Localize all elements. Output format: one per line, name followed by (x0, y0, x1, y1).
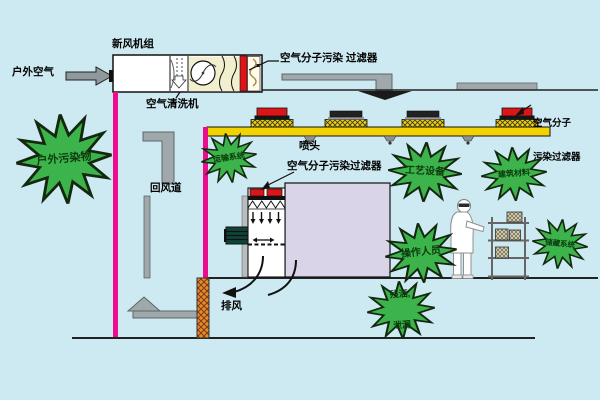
ceiling-filter-unit (325, 111, 367, 127)
bench-amc-filter (267, 189, 282, 196)
ceiling-filter-unit (402, 111, 444, 127)
return-air-duct (128, 132, 197, 318)
amc-filter-right-line1: 空气分子 (533, 118, 581, 129)
goggles-icon (459, 204, 470, 208)
air-washer-label: 空气清洗机 (146, 98, 199, 111)
motor-icon (224, 227, 248, 244)
ahu-amc-filter-bar (240, 56, 247, 91)
fan-icon (190, 61, 216, 85)
outer-wall (113, 92, 118, 338)
starburst-outdoor-pollutants: 户外污染物 (12, 110, 115, 208)
ahu-box (113, 55, 262, 92)
nozzle-label: 喷头 (299, 140, 320, 153)
return-duct-label: 回风道 (150, 182, 182, 195)
starburst-transport-system: 运输系统 (198, 129, 260, 186)
storage-box (510, 230, 521, 240)
starburst-label-line1: 残洒, (389, 289, 410, 301)
outdoor-air-label: 户外空气 (12, 66, 54, 79)
return-air-up-arrow (128, 297, 160, 311)
supply-air-down-arrow (358, 91, 412, 100)
cleanroom-amc-diagram: 新风机组 户外空气 空气清洗机 空气分子污染 过滤器 空气分子 污染过滤器 喷头… (0, 0, 600, 400)
sprinkler-nozzle-icon (462, 136, 474, 145)
storage-box (496, 247, 509, 258)
outdoor-air-arrow (66, 67, 115, 85)
bench-amc-filter (250, 189, 264, 196)
starburst-process-equipment: 工艺设备 (386, 140, 463, 204)
supply-duct (282, 74, 537, 100)
amc-filter-top-label: 空气分子污染 过滤器 (280, 52, 377, 65)
storage-box (496, 229, 509, 240)
coil-filter-icon (248, 57, 261, 92)
exhaust-label: 排风 (221, 300, 242, 313)
ceiling-filter-unit (496, 108, 538, 127)
starburst-label-line2: 泄漏 (391, 320, 412, 332)
starburst-building-materials: 建筑材料 (479, 145, 549, 203)
starburst-storage-system: 储藏系统 (530, 216, 591, 272)
duct-segment-right (457, 83, 537, 90)
starburst-spills-leaks: 残洒, 泄漏 (365, 279, 437, 342)
process-equipment-box (285, 183, 390, 277)
storage-box (507, 212, 522, 222)
floor-penetration-column (197, 278, 209, 338)
bench-filter-label: 空气分子污染过滤器 (287, 160, 382, 173)
ceiling-duct (207, 108, 550, 145)
storage-shelf (488, 212, 529, 280)
starburst-label: 工艺设备 (405, 165, 446, 179)
ceiling-filter-unit (251, 108, 293, 127)
fresh-air-unit-label: 新风机组 (112, 38, 154, 51)
wet-bench-unit (224, 188, 285, 277)
